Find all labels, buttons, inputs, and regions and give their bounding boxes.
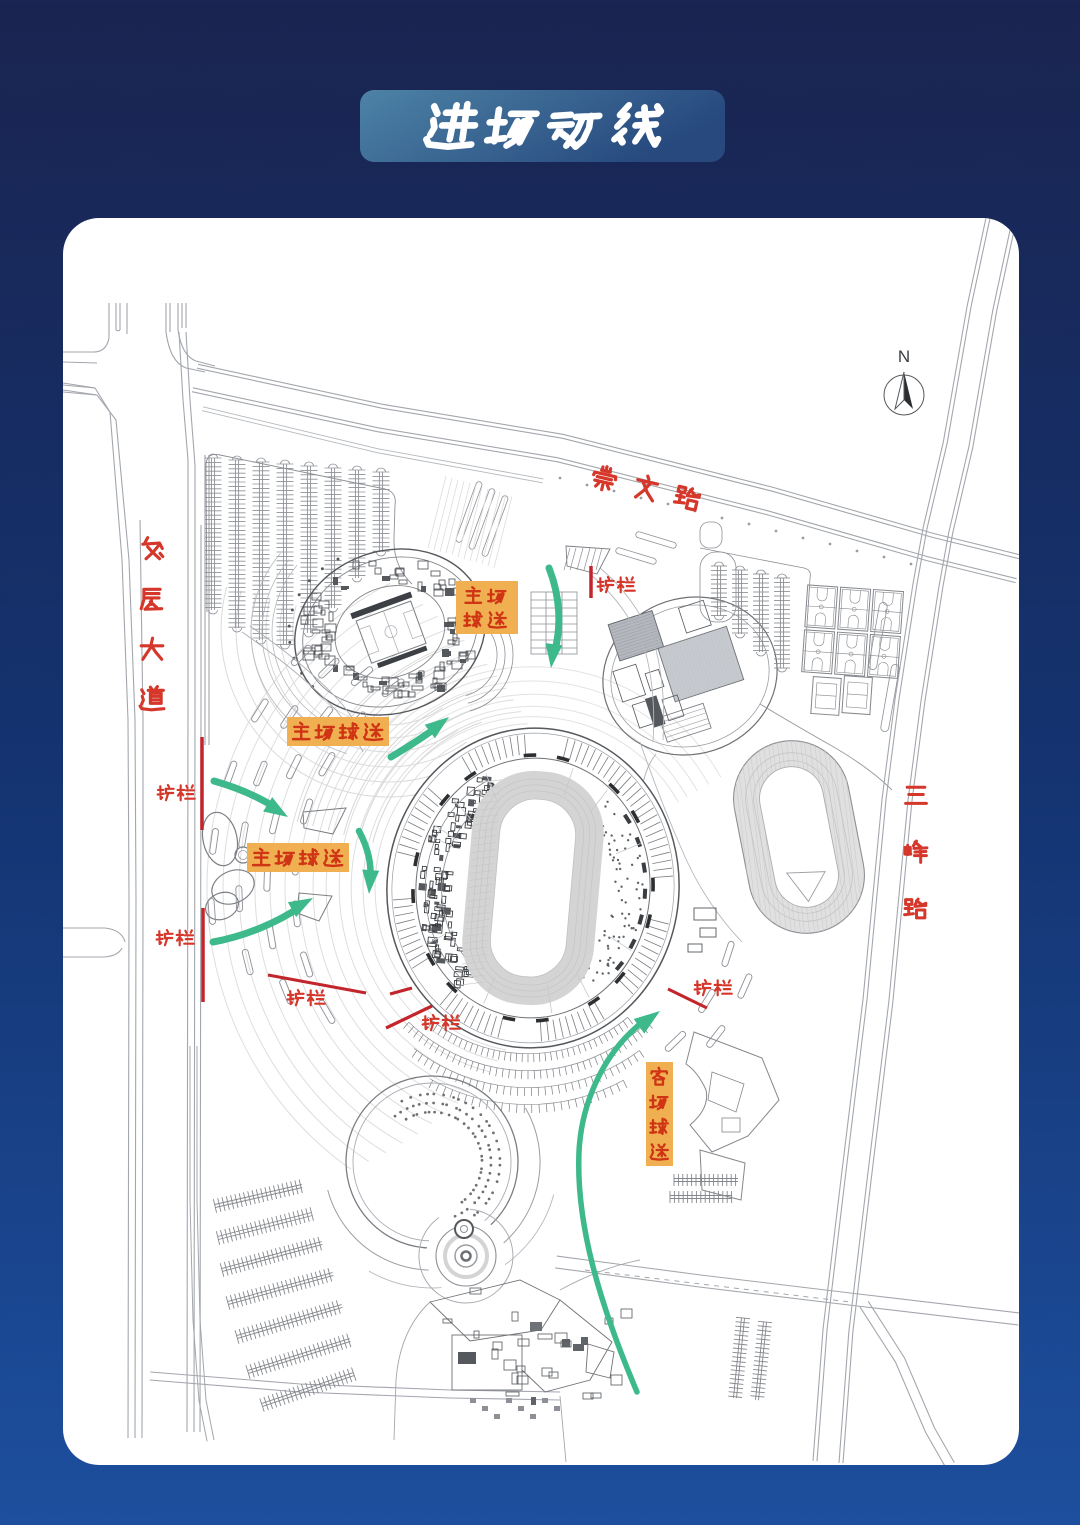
- svg-text:N: N: [898, 347, 910, 366]
